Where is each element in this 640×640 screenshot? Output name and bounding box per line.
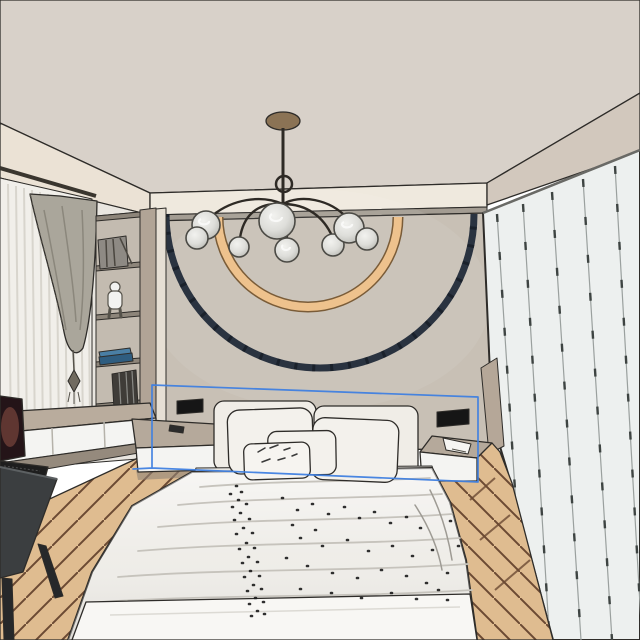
foot-sheet xyxy=(72,594,477,640)
room-viewport[interactable] xyxy=(0,0,640,640)
laptop-screen-glow xyxy=(1,407,19,447)
globe xyxy=(186,227,208,249)
globe xyxy=(229,237,249,257)
figurine-body xyxy=(108,291,122,309)
wall-niche-right[interactable] xyxy=(437,409,469,427)
wall-pilaster xyxy=(156,208,166,453)
tassel-cord xyxy=(73,350,74,370)
phone[interactable] xyxy=(169,425,184,433)
globe xyxy=(356,228,378,250)
chandelier-canopy xyxy=(266,112,300,130)
chair-leg-2 xyxy=(2,578,14,640)
render-canvas[interactable] xyxy=(0,0,640,640)
nightstand-left-top[interactable] xyxy=(132,419,218,448)
wall-niche-left[interactable] xyxy=(177,399,203,414)
